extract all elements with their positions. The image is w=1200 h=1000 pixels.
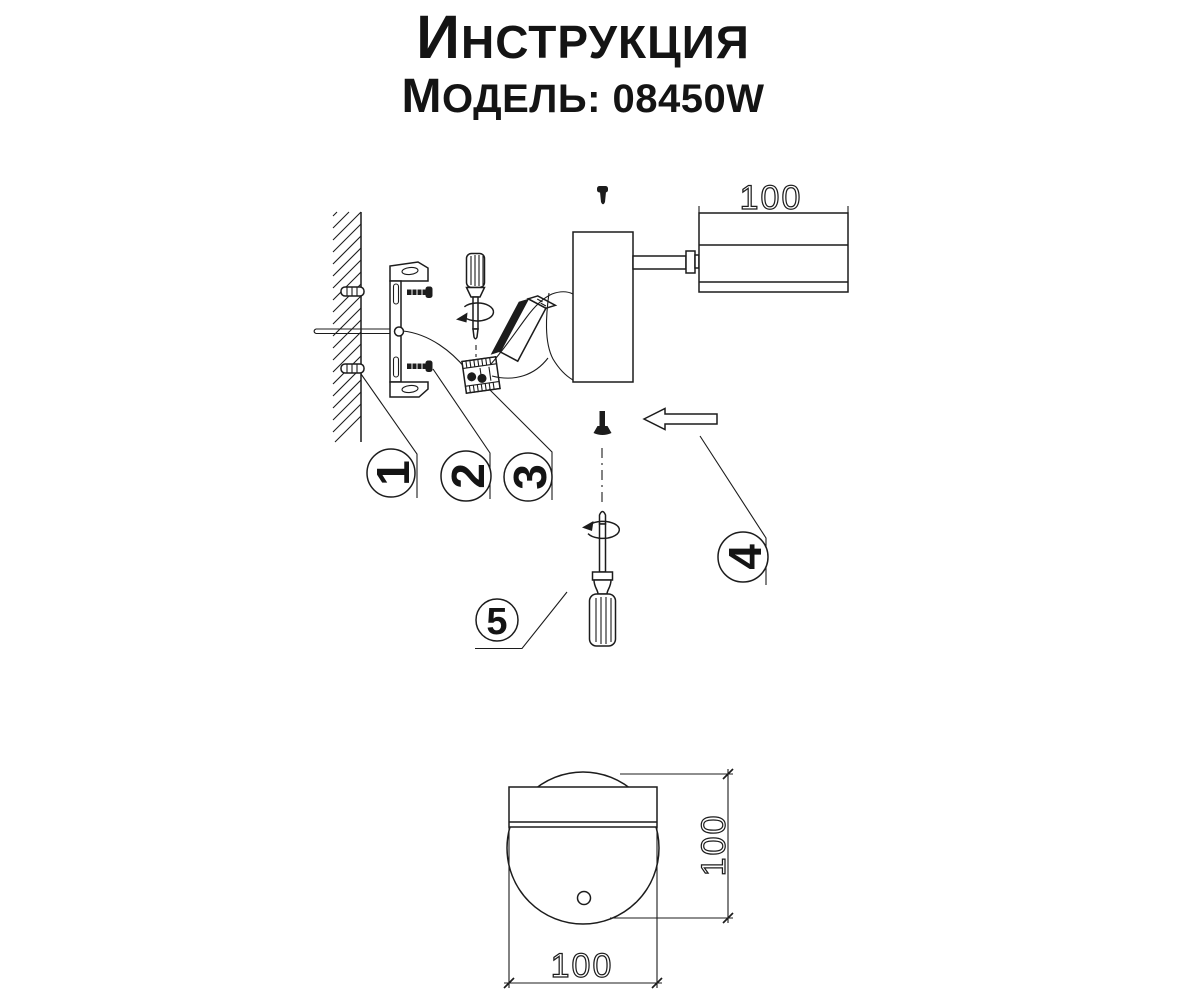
callout-number: 2 xyxy=(442,463,494,489)
mounting-screw-top xyxy=(407,287,433,299)
mounting-bracket xyxy=(390,262,428,397)
callout-5: 5 xyxy=(476,599,518,643)
callout-1: 1 xyxy=(367,449,419,497)
screw-top xyxy=(597,186,608,204)
insert-direction-arrow xyxy=(644,409,717,430)
dimension-front-width: 100 xyxy=(504,827,662,988)
dimension-head-length: 100 xyxy=(740,179,803,217)
wall-anchor-bottom xyxy=(341,364,364,373)
terminal-block xyxy=(462,357,500,393)
callout-number: 4 xyxy=(719,544,771,570)
lamp-head xyxy=(699,206,848,292)
screwdriver-upper xyxy=(467,254,485,358)
switch-dot xyxy=(578,892,591,905)
wall-section xyxy=(333,212,364,442)
mounting-screw-bottom xyxy=(407,361,433,373)
screwdriver-lower xyxy=(590,512,616,647)
dimension-label: 100 xyxy=(551,947,614,985)
front-view xyxy=(507,772,659,924)
lamp-body xyxy=(573,232,633,382)
screw-bottom xyxy=(594,411,612,435)
wire-grommet xyxy=(395,327,404,336)
assembly-diagram: 100 xyxy=(0,0,1200,1000)
instruction-sheet: Инструкция Модель: 08450W xyxy=(0,0,1200,1000)
callout-number: 5 xyxy=(486,601,507,643)
leader-lines xyxy=(361,369,766,649)
driver-box xyxy=(491,289,556,370)
callout-4: 4 xyxy=(718,532,771,582)
callout-number: 1 xyxy=(367,460,419,486)
lamp-base-band xyxy=(509,787,657,827)
wall-hatching xyxy=(333,212,361,442)
lamp-arm xyxy=(633,251,699,273)
wall-anchor-top xyxy=(341,287,364,296)
callout-3: 3 xyxy=(504,453,556,501)
dimension-label: 100 xyxy=(740,179,803,217)
callout-2: 2 xyxy=(441,451,494,501)
callout-number: 3 xyxy=(504,464,556,490)
dimension-label: 100 xyxy=(695,814,733,877)
